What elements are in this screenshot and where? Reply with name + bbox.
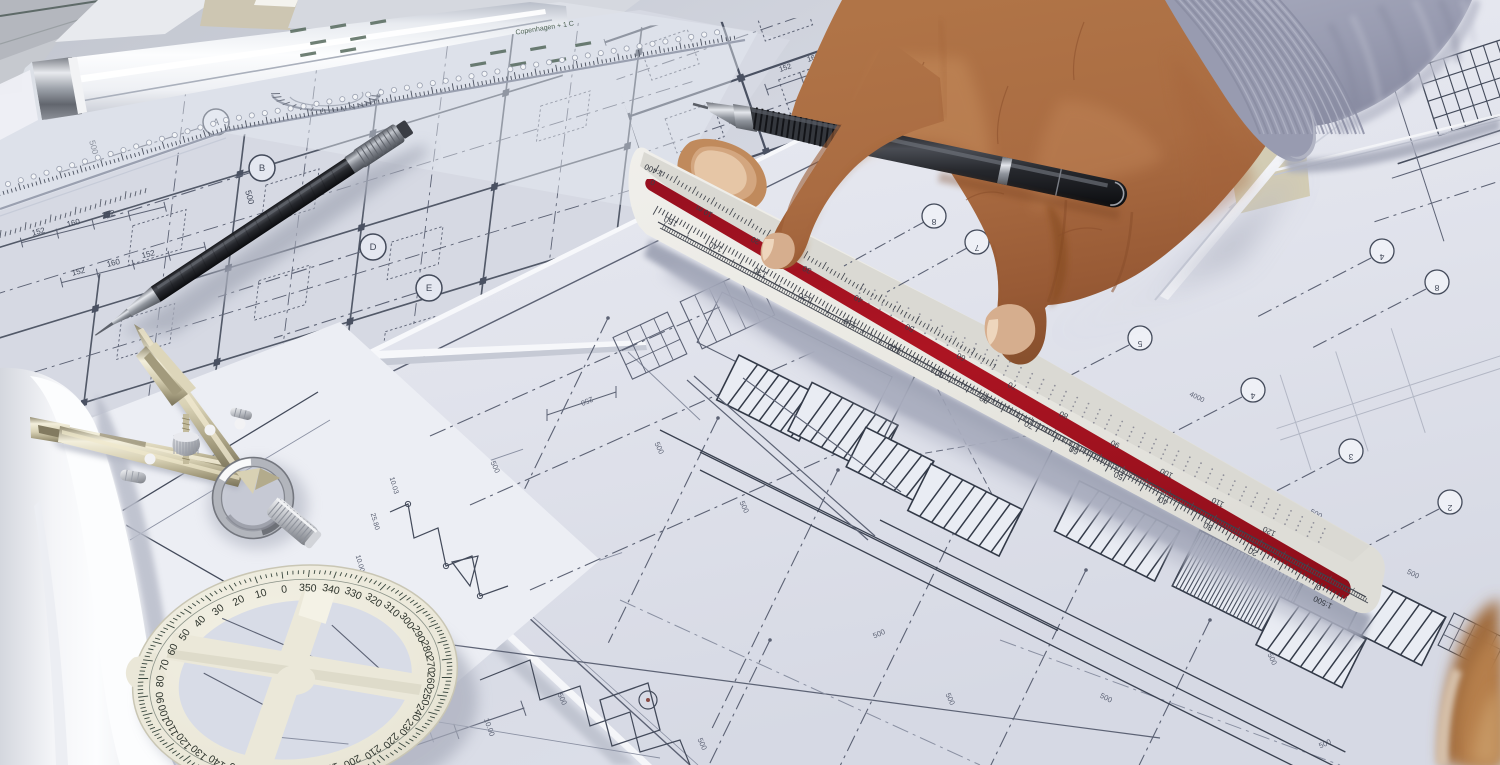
svg-text:3: 3 <box>1348 452 1353 462</box>
svg-text:8: 8 <box>1434 283 1439 293</box>
svg-text:80: 80 <box>154 675 167 687</box>
svg-text:7: 7 <box>974 243 979 253</box>
svg-text:5: 5 <box>1137 339 1142 349</box>
svg-text:350: 350 <box>299 582 317 595</box>
svg-text:4: 4 <box>1250 391 1255 401</box>
svg-text:8: 8 <box>931 217 936 227</box>
svg-text:E: E <box>426 283 432 294</box>
svg-text:B: B <box>259 163 265 174</box>
svg-text:4: 4 <box>1379 252 1384 262</box>
svg-text:D: D <box>370 242 377 253</box>
svg-text:90: 90 <box>154 691 167 704</box>
svg-text:2: 2 <box>1447 503 1452 513</box>
